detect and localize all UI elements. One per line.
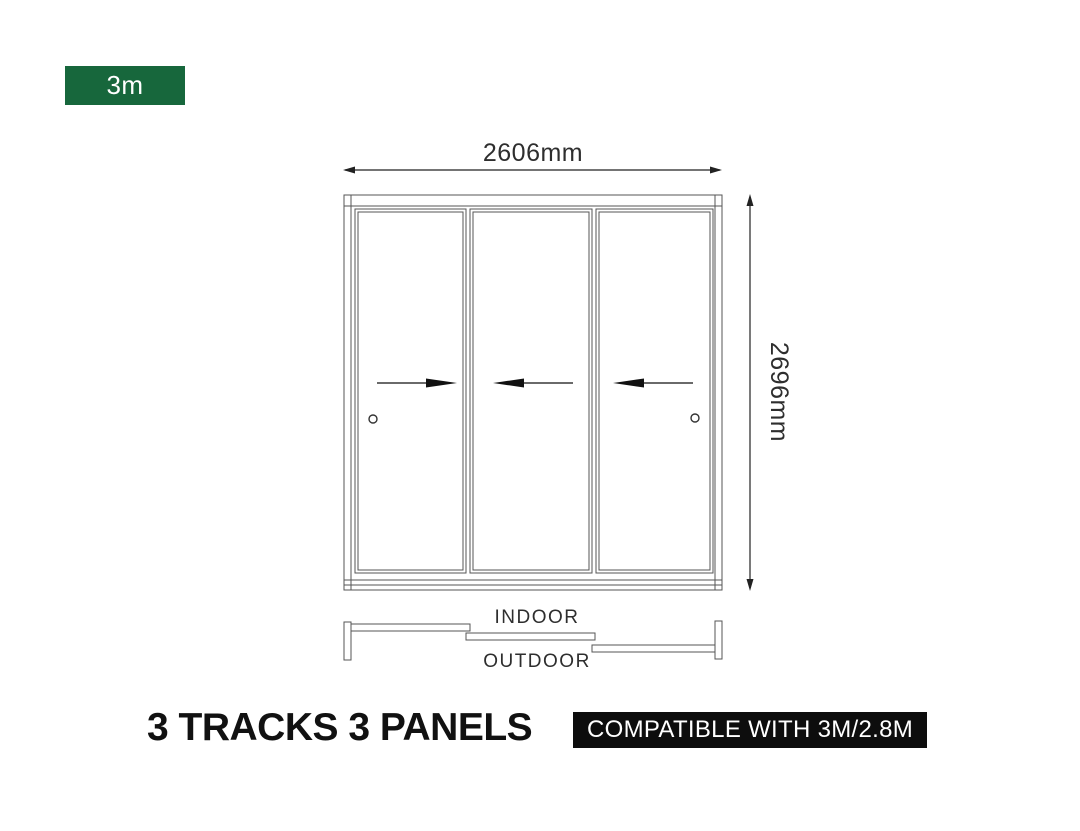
frame-outer: [344, 195, 722, 590]
outdoor-label: OUTDOOR: [483, 651, 591, 672]
panel-3-handle-icon: [691, 414, 699, 422]
door-panel-1: [355, 209, 466, 573]
size-badge: 3m: [65, 66, 185, 105]
arrow-up-icon: [747, 194, 754, 206]
track-plan-view: INDOOR OUTDOOR: [344, 607, 722, 672]
sliding-door-diagram: 2606mm 2696mm: [330, 135, 810, 680]
panel-1-slide-right-arrow-icon: [377, 379, 457, 388]
plan-right-end-cap: [715, 621, 722, 659]
width-dimension: 2606mm: [343, 139, 722, 174]
indoor-label: INDOOR: [495, 607, 580, 628]
height-dimension-label: 2696mm: [765, 342, 793, 442]
width-dimension-label: 2606mm: [483, 139, 583, 167]
arrow-right-icon: [710, 167, 722, 174]
compatibility-badge-label: COMPATIBLE WITH 3M/2.8M: [587, 716, 913, 744]
size-badge-label: 3m: [106, 70, 143, 101]
arrow-left-icon: [343, 167, 355, 174]
door-panel-2: [470, 209, 592, 573]
door-frame: [344, 195, 722, 590]
arrow-down-icon: [747, 579, 754, 591]
plan-panel-1-track: [351, 624, 470, 631]
panel-2-slide-left-arrow-icon: [493, 379, 573, 388]
plan-panel-2-track: [466, 633, 595, 640]
plan-left-end-cap: [344, 622, 351, 660]
product-title: 3 TRACKS 3 PANELS: [147, 706, 532, 750]
panel-3-slide-left-arrow-icon: [613, 379, 693, 388]
height-dimension: 2696mm: [747, 194, 794, 591]
compatibility-badge: COMPATIBLE WITH 3M/2.8M: [573, 712, 927, 748]
door-panel-3: [596, 209, 713, 573]
product-spec-sheet: 3m 2606mm 2696mm: [0, 0, 1080, 831]
plan-panel-3-track: [592, 645, 717, 652]
panel-1-handle-icon: [369, 415, 377, 423]
